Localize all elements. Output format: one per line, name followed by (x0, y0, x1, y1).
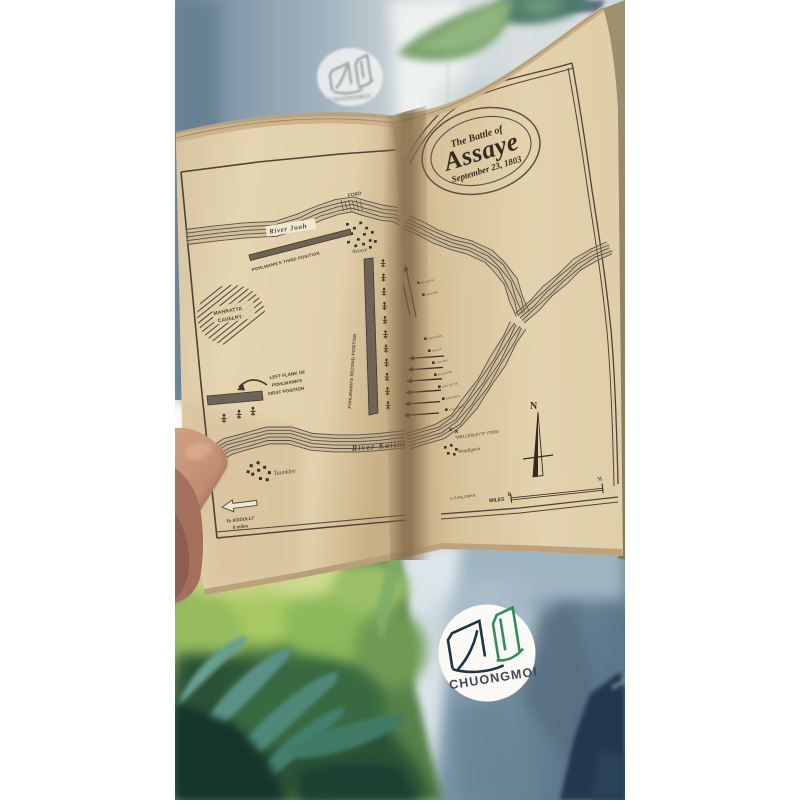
svg-text:N: N (530, 401, 538, 412)
